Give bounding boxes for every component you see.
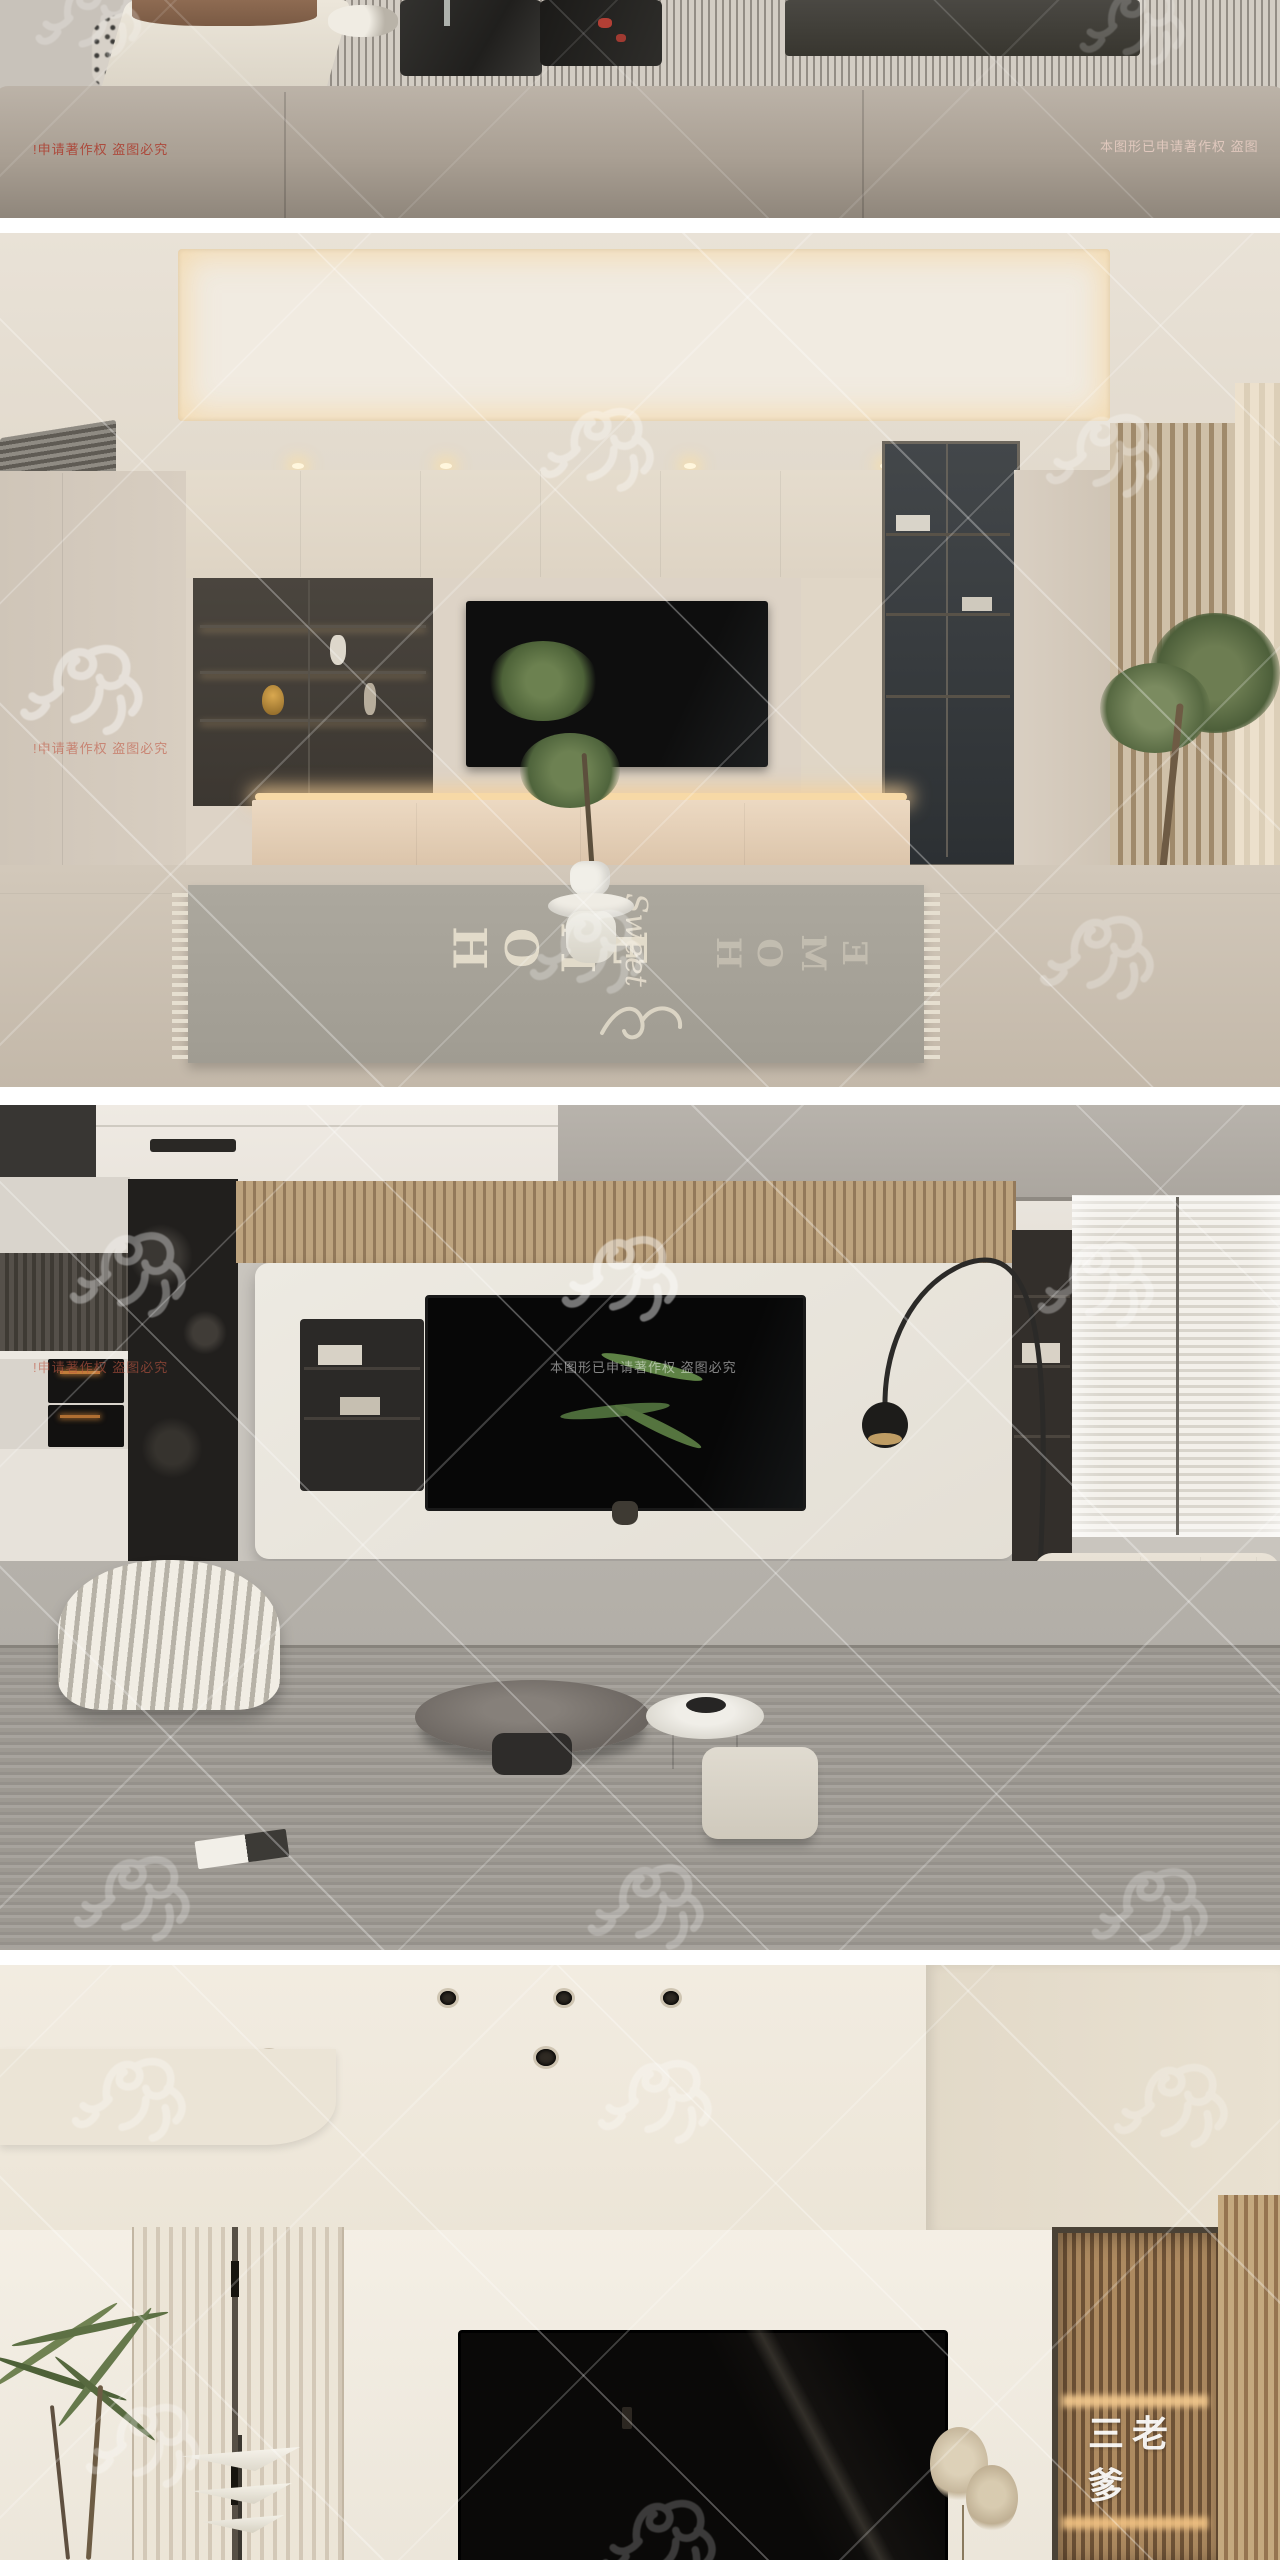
cabinet-books bbox=[1072, 2257, 1132, 2283]
glass-coffee-table bbox=[400, 0, 542, 76]
copyright-watermark-left: !申请著作权 盗图必究 bbox=[33, 738, 168, 757]
sofa-cushion-seam bbox=[284, 92, 286, 218]
beige-pillar bbox=[1014, 470, 1110, 870]
left-curved-bulkhead bbox=[0, 2049, 336, 2145]
niche-shelf bbox=[304, 1367, 420, 1370]
console-bench bbox=[252, 800, 910, 868]
right-slat-panel bbox=[1218, 2195, 1280, 2560]
glass-shelf bbox=[886, 695, 1010, 698]
drawer-seam bbox=[580, 803, 581, 865]
rug-fringe-right bbox=[924, 889, 940, 1059]
product-image-4: 三老爹 bbox=[0, 1965, 1280, 2560]
linear-vent bbox=[150, 1139, 236, 1152]
ceiling-spotlight bbox=[684, 463, 696, 469]
red-accent-item bbox=[616, 34, 626, 42]
niche-shelf bbox=[304, 1417, 420, 1420]
side-table-tray bbox=[686, 1697, 726, 1713]
crumpled-paper-items bbox=[328, 5, 398, 37]
glass-mullion bbox=[946, 443, 948, 857]
bottle-glint bbox=[444, 0, 450, 26]
ceiling-tray-cove bbox=[178, 249, 1110, 421]
tv-glare-streak bbox=[700, 2330, 940, 2560]
window-mullion bbox=[1176, 1197, 1179, 1535]
black-glossy-object bbox=[540, 0, 662, 66]
wall-tv-screen bbox=[425, 1295, 806, 1511]
striped-armchair-seat bbox=[70, 1665, 298, 1805]
decor-bottle bbox=[364, 683, 376, 715]
ceiling-downlight bbox=[663, 1991, 679, 2005]
red-accent-item bbox=[598, 18, 612, 28]
ceiling-downlight bbox=[556, 1991, 572, 2005]
white-books bbox=[962, 597, 992, 611]
product-image-2: HOME HOME Sweet !申请著作权 盗图必究 bbox=[0, 233, 1280, 1087]
cabinet-seam bbox=[660, 471, 661, 577]
cabinet-seam bbox=[540, 471, 541, 577]
left-plain-wall bbox=[0, 471, 186, 871]
white-pouf bbox=[702, 1747, 818, 1839]
shelf bbox=[200, 671, 426, 674]
white-vase bbox=[330, 635, 346, 665]
ceiling-spotlight bbox=[440, 463, 452, 469]
drawer-seam bbox=[416, 803, 417, 865]
oven-display bbox=[60, 1415, 100, 1418]
copyright-watermark-left: !申请著作权 盗图必究 bbox=[33, 1357, 168, 1376]
copyright-watermark-left: !申请著作权 盗图必究 bbox=[33, 139, 168, 158]
brand-watermark: 三老爹 bbox=[1088, 2405, 1218, 2509]
ceiling-spotlight bbox=[292, 463, 304, 469]
glass-shelf bbox=[886, 613, 1010, 616]
rug-word-home-mirrored: HOME bbox=[712, 933, 867, 973]
drawer-seam bbox=[744, 803, 745, 865]
shelf bbox=[200, 719, 426, 722]
flower-stem bbox=[962, 2505, 964, 2560]
dried-flower-plume bbox=[966, 2465, 1018, 2531]
gold-vase bbox=[262, 685, 284, 715]
stone-table-pedestal bbox=[492, 1733, 572, 1775]
pedestal-base bbox=[566, 911, 616, 963]
niche-books bbox=[318, 1345, 362, 1365]
product-image-1: !申请著作权 盗图必究 本图形已申请著作权 盗图 bbox=[0, 0, 1280, 218]
cabinet-seam bbox=[300, 471, 301, 577]
glass-shelf bbox=[886, 533, 1010, 536]
rug-flourish bbox=[598, 993, 688, 1049]
right-cream-cabinet bbox=[801, 578, 882, 808]
copyright-watermark-right: 本图形已申请著作权 盗图 bbox=[1100, 136, 1259, 155]
tv-logo-mark bbox=[622, 2407, 632, 2429]
tree-foliage bbox=[1100, 663, 1210, 753]
niche-plant bbox=[228, 591, 280, 623]
niche-books bbox=[340, 1397, 380, 1415]
dark-hood-slab bbox=[0, 1105, 96, 1177]
built-in-oven-lower bbox=[48, 1405, 124, 1447]
brown-throw-blanket bbox=[132, 0, 317, 26]
cabinet-shelf-glow bbox=[1062, 2517, 1208, 2529]
cabinet-seam bbox=[420, 471, 421, 577]
sofa-cushion-seam bbox=[862, 90, 864, 218]
cabinet-seam bbox=[780, 471, 781, 577]
white-books bbox=[896, 515, 930, 531]
shelf-divider bbox=[308, 580, 310, 804]
side-table-leg bbox=[672, 1735, 674, 1769]
copyright-watermark-center: 本图形已申请著作权 盗图必究 bbox=[550, 1357, 737, 1376]
slot-handle bbox=[231, 2261, 239, 2297]
wall-panel-seam bbox=[62, 473, 63, 868]
shelf bbox=[200, 625, 426, 628]
white-vase-on-pedestal bbox=[570, 861, 610, 897]
ceiling-downlight bbox=[536, 2049, 556, 2066]
arc-floor-lamp bbox=[790, 1145, 1110, 1575]
ceiling-downlight bbox=[440, 1991, 456, 2005]
fluted-glass-cabinet bbox=[0, 1253, 130, 1351]
lower-cabinets bbox=[0, 1449, 130, 1561]
rug-fringe-left bbox=[172, 889, 188, 1059]
product-image-3: !申请著作权 盗图必究 本图形已申请著作权 盗图必究 bbox=[0, 1105, 1280, 1950]
gallery-page: !申请著作权 盗图必究 本图形已申请著作权 盗图 bbox=[0, 0, 1280, 2560]
plant-foliage bbox=[520, 733, 620, 808]
background-media-slab bbox=[785, 0, 1140, 56]
sofa-backrest bbox=[0, 86, 1280, 218]
